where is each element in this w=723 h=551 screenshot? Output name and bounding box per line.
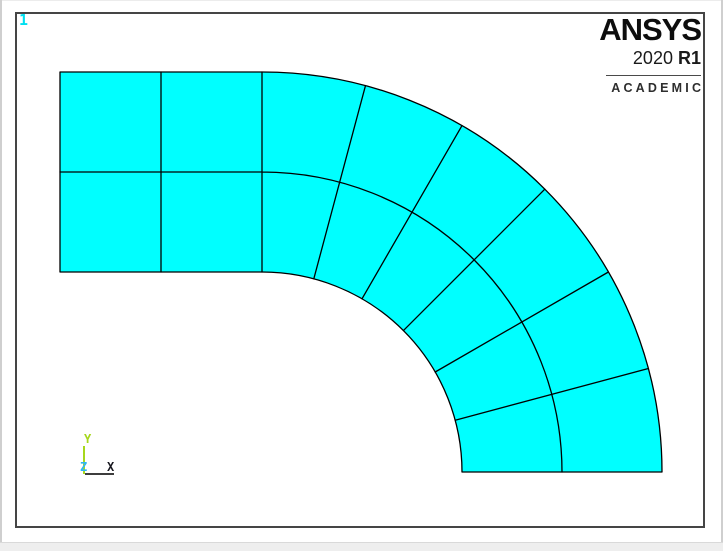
- triad-x-label: X: [107, 461, 114, 473]
- release-tag: R1: [678, 48, 701, 68]
- ansys-graphics-window: 1 ANSYS 2020 R1 ACADEMIC Y Z X: [0, 0, 723, 551]
- ansys-logo: ANSYS 2020 R1 ACADEMIC: [599, 16, 701, 95]
- triad-y-label: Y: [84, 433, 91, 445]
- release-version: 2020: [633, 48, 673, 68]
- elbow-mesh-region[interactable]: [60, 72, 662, 472]
- window-number-label: 1: [19, 12, 28, 29]
- ansys-brand-text: ANSYS: [599, 16, 701, 45]
- ansys-edition-text: ACADEMIC: [599, 81, 704, 95]
- window-edge-bottom: [0, 542, 723, 551]
- logo-divider: [606, 75, 701, 76]
- triad-z-label: Z: [80, 461, 87, 473]
- ansys-release-text: 2020 R1: [599, 49, 701, 67]
